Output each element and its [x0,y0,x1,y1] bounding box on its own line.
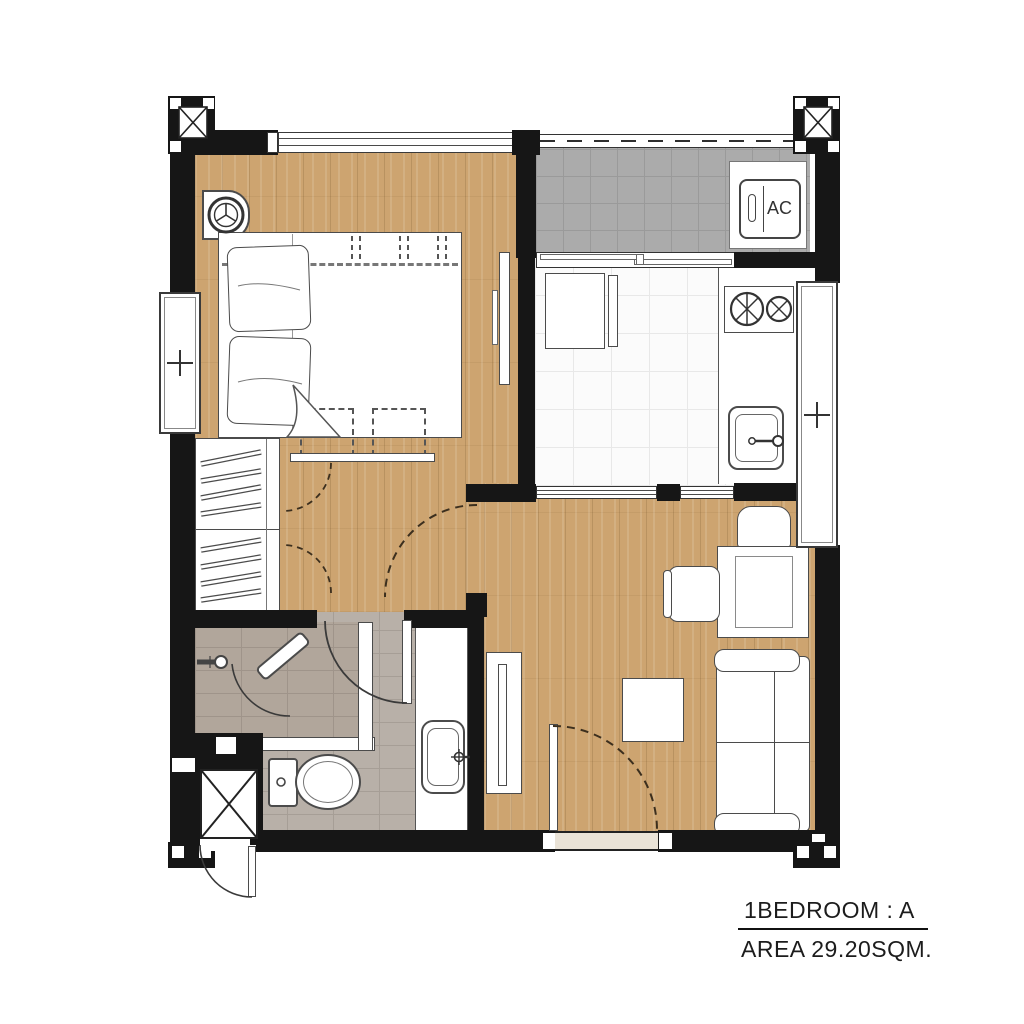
desk-chair-west-back [663,570,672,618]
toilet-tank [268,758,298,807]
balcony-railing [540,134,793,148]
shaft-notch [172,758,195,772]
coffee-table [622,678,684,742]
wall-left [170,430,195,848]
bedroom-window [278,132,516,153]
sofa-back-seam [775,742,809,743]
shower-floor [195,622,362,740]
entrance-door-leaf [549,724,558,831]
floor-plan: AC [0,0,1024,1024]
shower-curb-vertical [358,622,373,751]
sliding-door-leaf [634,259,732,265]
wall-balcony-divider [516,152,536,258]
wall-balcony-right [734,252,815,268]
bathroom-basin-inner [427,728,459,786]
sofa-seat-seam [717,742,777,743]
sliding-door-leaf [540,254,640,260]
entrance-sill [555,831,658,851]
sofa-seat [716,668,778,818]
sofa-back [774,656,810,832]
desk-mat [735,556,793,628]
column-notch [824,846,836,858]
kitchen-window-band [536,486,657,499]
kitchen-sink-basin [735,414,778,462]
service-door-opening [200,831,250,851]
kitchen-side-window [796,281,838,548]
sofa-armrest [714,649,800,672]
unit-type-label: 1BEDROOM : A [744,897,915,924]
column-notch [170,98,181,109]
title-divider [738,928,928,930]
fridge-door [608,275,618,347]
bed-bench [290,453,435,462]
area-label: AREA 29.20SQM. [741,936,932,963]
toilet-seat [303,761,353,803]
column-notch [170,141,181,152]
wall-kitchen-bottom [466,484,536,502]
bedroom-tv-panel [499,252,510,385]
fridge [545,273,605,349]
column-notch [828,98,839,109]
foot-stool-hidden [300,408,354,456]
column-notch [795,98,806,109]
column-notch [828,141,839,152]
ac-divider [763,186,764,232]
bathroom-door-leaf [402,620,412,704]
wardrobe [195,438,280,612]
wall-right [815,545,840,848]
bedroom-side-window [159,292,201,434]
column-notch [795,141,806,152]
pillow [226,336,311,427]
kitchen-window-band [680,486,734,499]
ac-pill [748,194,756,222]
column-notch [797,846,809,858]
wall-bottom [256,830,555,852]
wardrobe-front-line [266,439,267,611]
wall-jamb [659,833,672,849]
service-door-leaf [248,846,256,897]
shaft-notch [216,737,236,754]
wall-jamb [543,833,555,849]
wall-right [815,152,840,283]
window-jamb [267,132,278,153]
wall-top [195,130,278,155]
wall-bathroom-top [195,610,317,628]
foot-stool-hidden [372,408,426,456]
pillow [227,245,312,333]
wall-bedroom-kitchen [518,258,535,486]
wall-left [170,152,195,294]
tv-screen [498,664,507,786]
column-notch [203,98,214,109]
wall-bathroom-living [468,616,484,845]
stove [724,286,794,333]
desk-chair-west [668,566,720,622]
sliding-door-handle [636,254,644,265]
bedroom-tv-bracket [492,290,498,345]
column-notch [172,846,184,858]
ac-label: AC [767,198,792,219]
wall-bottom [658,830,815,852]
wall-stub [657,484,680,501]
desk-chair-north [737,506,791,548]
